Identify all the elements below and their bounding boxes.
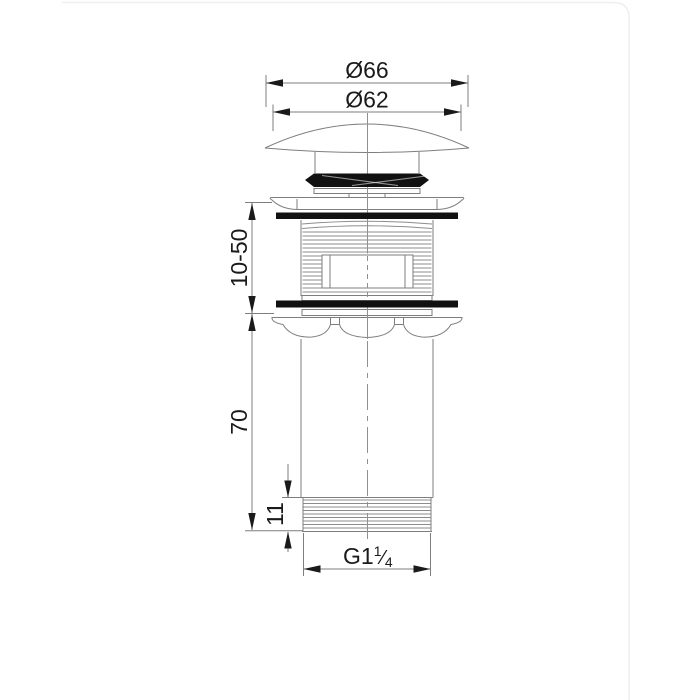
- arrowhead-down: [284, 481, 291, 498]
- rubber-washer-bottom: [276, 301, 458, 308]
- thread-size-numerator: 1: [374, 543, 382, 559]
- arrowhead-right: [444, 108, 461, 115]
- dim-label-body-length: 70: [226, 409, 252, 435]
- rubber-seal: [305, 174, 429, 188]
- thread-size-denominator: 4: [385, 554, 393, 570]
- arrowhead-down: [248, 513, 255, 530]
- dim-thread-length: 11: [262, 464, 302, 552]
- arrowhead-right: [414, 565, 431, 572]
- dim-label-thread-size: G11⁄4: [343, 543, 393, 570]
- arrowhead-left: [273, 108, 290, 115]
- dim-label-clamp-range: 10-50: [226, 229, 252, 288]
- thread-size-prefix: G1: [343, 543, 374, 569]
- dim-body-length: 70: [226, 314, 303, 531]
- dim-label-inner-diameter: Ø62: [345, 87, 388, 113]
- arrowhead-left: [304, 565, 321, 572]
- arrowhead-right: [451, 79, 468, 86]
- dim-thread-size: G11⁄4: [304, 533, 431, 576]
- technical-drawing: Ø66 Ø62 10-50 70 11: [0, 0, 700, 700]
- rubber-washer-top: [276, 213, 458, 220]
- dim-clamp-range: 10-50: [226, 203, 274, 314]
- dim-label-thread-length: 11: [262, 502, 288, 526]
- dim-label-outer-diameter: Ø66: [345, 57, 388, 83]
- arrowhead-up: [248, 314, 255, 331]
- arrowhead-down: [248, 296, 255, 313]
- pop-up-waste-geometry: [265, 113, 469, 543]
- arrowhead-left: [266, 79, 283, 86]
- drawing-canvas: Ø66 Ø62 10-50 70 11: [0, 0, 700, 700]
- arrowhead-up: [248, 203, 255, 220]
- arrowhead-up: [284, 532, 291, 549]
